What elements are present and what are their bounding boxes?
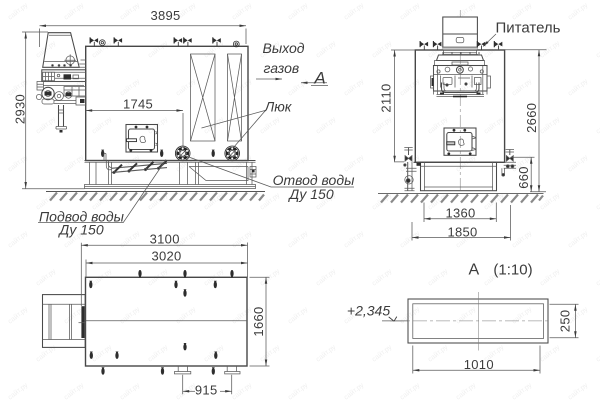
svg-text:газов: газов xyxy=(264,60,300,76)
svg-text:A: A xyxy=(313,69,325,88)
svg-text:Ду 150: Ду 150 xyxy=(57,222,103,238)
svg-text:250: 250 xyxy=(558,310,573,333)
svg-text:3100: 3100 xyxy=(150,232,180,247)
svg-text:Ду 150: Ду 150 xyxy=(287,186,333,202)
svg-text:A: A xyxy=(468,262,479,279)
svg-text:(1:10): (1:10) xyxy=(493,262,532,279)
svg-text:Питатель: Питатель xyxy=(496,20,561,37)
svg-text:2660: 2660 xyxy=(524,103,539,133)
svg-text:3020: 3020 xyxy=(151,249,181,264)
svg-text:1360: 1360 xyxy=(445,205,475,220)
svg-text:1745: 1745 xyxy=(123,97,153,112)
svg-text:915: 915 xyxy=(195,383,218,398)
svg-text:1010: 1010 xyxy=(464,357,494,372)
svg-text:1850: 1850 xyxy=(447,225,477,240)
svg-text:+2,345: +2,345 xyxy=(347,303,390,319)
svg-text:2110: 2110 xyxy=(379,83,394,112)
svg-text:Выход: Выход xyxy=(263,40,305,56)
svg-text:660: 660 xyxy=(516,166,531,189)
svg-text:2930: 2930 xyxy=(13,94,28,124)
svg-text:1660: 1660 xyxy=(251,306,266,336)
svg-text:3895: 3895 xyxy=(150,8,180,23)
svg-text:Люк: Люк xyxy=(264,99,293,115)
